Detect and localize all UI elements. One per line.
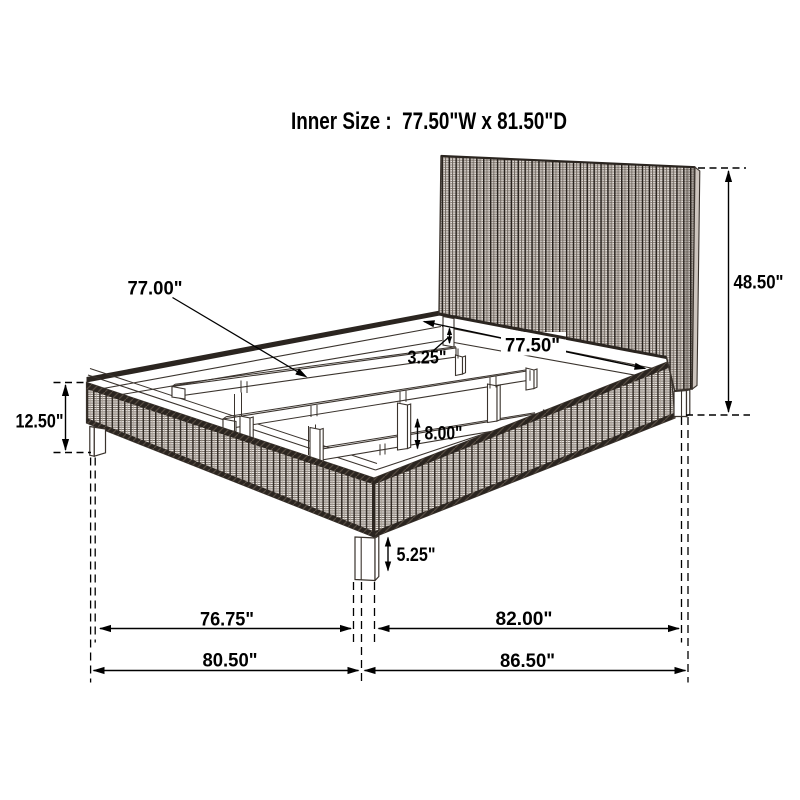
svg-text:77.00": 77.00" (128, 279, 183, 300)
svg-text:86.50": 86.50" (500, 651, 555, 672)
svg-text:Inner Size : 77.50"W x 81.50": Inner Size : 77.50"W x 81.50"D (291, 108, 567, 135)
svg-text:8.00": 8.00" (425, 424, 463, 445)
svg-text:48.50": 48.50" (734, 273, 784, 294)
svg-text:3.25": 3.25" (408, 347, 447, 368)
svg-text:80.50": 80.50" (203, 651, 258, 672)
svg-text:82.00": 82.00" (496, 609, 553, 630)
svg-text:12.50": 12.50" (16, 412, 64, 433)
svg-text:77.50": 77.50" (505, 336, 560, 357)
svg-text:5.25": 5.25" (397, 545, 436, 566)
svg-text:76.75": 76.75" (200, 610, 254, 631)
